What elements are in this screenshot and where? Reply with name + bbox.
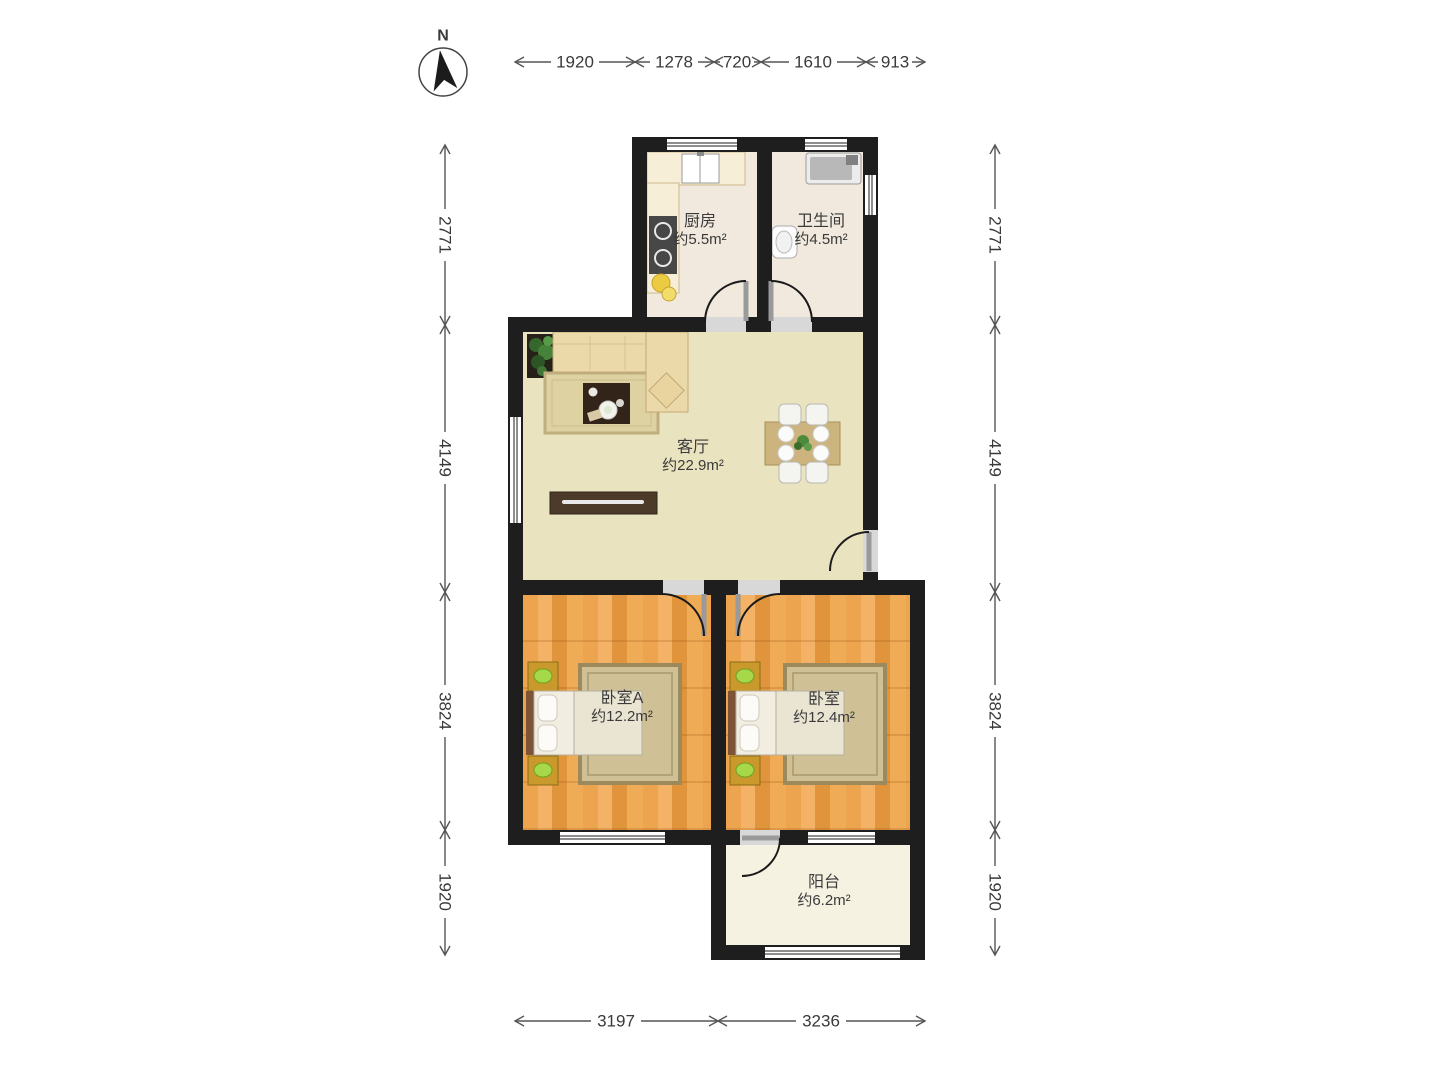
bedroom-a-name: 卧室A bbox=[591, 690, 653, 708]
dim-right-2: 4149 bbox=[986, 439, 1005, 477]
balcony-name: 阳台 bbox=[797, 874, 850, 892]
room-label-kitchen: 厨房 约5.5m² bbox=[673, 213, 726, 249]
bathroom-name: 卫生间 bbox=[794, 213, 847, 231]
compass-north: N bbox=[419, 28, 467, 97]
dim-left-2: 4149 bbox=[436, 439, 455, 477]
door-kitchen bbox=[705, 281, 746, 322]
dim-left-3: 3824 bbox=[436, 692, 455, 730]
bedroom-b-name: 卧室 bbox=[793, 691, 855, 709]
bedroom-a-area: 约12.2m² bbox=[591, 708, 653, 726]
balcony-area: 约6.2m² bbox=[797, 892, 850, 910]
kitchen-area: 约5.5m² bbox=[673, 231, 726, 249]
dim-right-4: 1920 bbox=[986, 873, 1005, 911]
door-entry bbox=[830, 532, 869, 571]
dim-left-4: 1920 bbox=[436, 873, 455, 911]
dim-bottom-1: 3197 bbox=[597, 1012, 635, 1031]
compass-n-label: N bbox=[437, 28, 449, 45]
kitchen-name: 厨房 bbox=[673, 213, 726, 231]
dim-top-2: 1278 bbox=[655, 53, 693, 72]
room-label-bedroom-a: 卧室A 约12.2m² bbox=[591, 690, 653, 726]
room-label-bathroom: 卫生间 约4.5m² bbox=[794, 213, 847, 249]
room-label-bedroom-b: 卧室 约12.4m² bbox=[793, 691, 855, 727]
dim-top-1: 1920 bbox=[556, 53, 594, 72]
door-bathroom bbox=[771, 281, 812, 322]
dimension-left: 2771 4149 3824 1920 bbox=[436, 145, 455, 955]
annotation-layer: N 1920 1278 720 1610 913 2771 bbox=[0, 0, 1440, 1080]
dim-right-3: 3824 bbox=[986, 692, 1005, 730]
bathroom-area: 约4.5m² bbox=[794, 231, 847, 249]
room-label-living: 客厅 约22.9m² bbox=[662, 439, 724, 475]
living-name: 客厅 bbox=[662, 439, 724, 457]
door-bedroom-a bbox=[662, 594, 704, 636]
dim-top-5: 913 bbox=[881, 53, 909, 72]
door-balcony bbox=[742, 838, 780, 876]
dimension-right: 2771 4149 3824 1920 bbox=[986, 145, 1005, 955]
dim-top-4: 1610 bbox=[794, 53, 832, 72]
dim-right-1: 2771 bbox=[986, 216, 1005, 254]
room-label-balcony: 阳台 约6.2m² bbox=[797, 874, 850, 910]
dimension-top: 1920 1278 720 1610 913 bbox=[515, 53, 925, 72]
dim-bottom-2: 3236 bbox=[802, 1012, 840, 1031]
living-area: 约22.9m² bbox=[662, 457, 724, 475]
dim-top-3: 720 bbox=[723, 53, 751, 72]
floor-plan-canvas: N 1920 1278 720 1610 913 2771 bbox=[0, 0, 1440, 1080]
dim-left-1: 2771 bbox=[436, 216, 455, 254]
door-bedroom-b bbox=[738, 594, 780, 636]
dimension-bottom: 3197 3236 bbox=[515, 1012, 925, 1031]
bedroom-b-area: 约12.4m² bbox=[793, 709, 855, 727]
